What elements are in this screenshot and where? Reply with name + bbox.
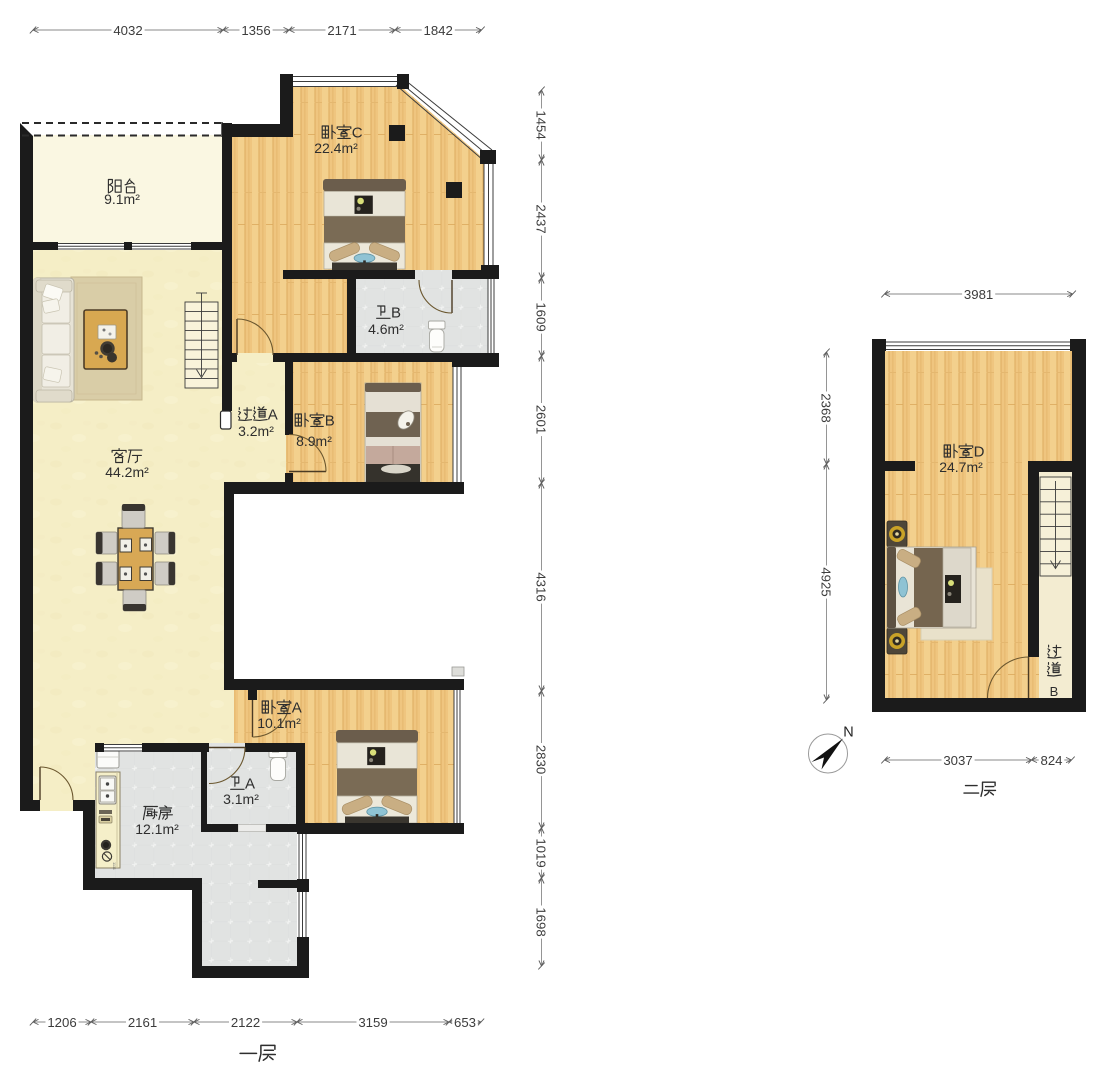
svg-text:1842: 1842 xyxy=(424,23,453,38)
svg-text:B: B xyxy=(391,304,401,321)
svg-text:824: 824 xyxy=(1040,753,1062,768)
svg-text:4.6m²: 4.6m² xyxy=(368,321,404,337)
svg-text:2171: 2171 xyxy=(327,23,356,38)
svg-text:B: B xyxy=(1050,684,1059,699)
svg-text:A: A xyxy=(292,699,302,716)
svg-text:24.7m²: 24.7m² xyxy=(939,459,983,475)
svg-text:3159: 3159 xyxy=(358,1015,387,1030)
svg-text:A: A xyxy=(268,406,278,423)
svg-text:4316: 4316 xyxy=(534,572,549,601)
svg-text:2830: 2830 xyxy=(534,745,549,774)
svg-text:44.2m²: 44.2m² xyxy=(105,464,149,480)
svg-text:1206: 1206 xyxy=(47,1015,76,1030)
svg-text:653: 653 xyxy=(454,1015,476,1030)
svg-text:1454: 1454 xyxy=(534,110,549,139)
svg-text:D: D xyxy=(974,443,985,460)
svg-text:3.1m²: 3.1m² xyxy=(223,791,259,807)
svg-text:2437: 2437 xyxy=(534,204,549,233)
svg-text:2368: 2368 xyxy=(819,393,834,422)
svg-text:2161: 2161 xyxy=(128,1015,157,1030)
svg-text:3.2m²: 3.2m² xyxy=(238,423,274,439)
svg-text:22.4m²: 22.4m² xyxy=(314,140,358,156)
svg-text:2601: 2601 xyxy=(534,405,549,434)
svg-text:4925: 4925 xyxy=(819,567,834,596)
svg-text:8.9m²: 8.9m² xyxy=(296,433,332,449)
svg-text:1698: 1698 xyxy=(534,907,549,936)
svg-text:A: A xyxy=(245,775,255,792)
svg-text:3981: 3981 xyxy=(964,287,993,302)
svg-text:2122: 2122 xyxy=(231,1015,260,1030)
svg-text:1111: 1111 xyxy=(112,862,117,871)
svg-text:1609: 1609 xyxy=(534,302,549,331)
svg-text:10.1m²: 10.1m² xyxy=(257,715,301,731)
svg-text:B: B xyxy=(325,412,335,429)
svg-text:4032: 4032 xyxy=(113,23,142,38)
svg-text:1019: 1019 xyxy=(534,838,549,867)
svg-text:C: C xyxy=(352,124,363,141)
svg-text:N: N xyxy=(843,725,853,741)
svg-text:3037: 3037 xyxy=(943,753,972,768)
svg-text:1356: 1356 xyxy=(241,23,270,38)
svg-text:9.1m²: 9.1m² xyxy=(104,191,140,207)
svg-text:12.1m²: 12.1m² xyxy=(135,821,179,837)
